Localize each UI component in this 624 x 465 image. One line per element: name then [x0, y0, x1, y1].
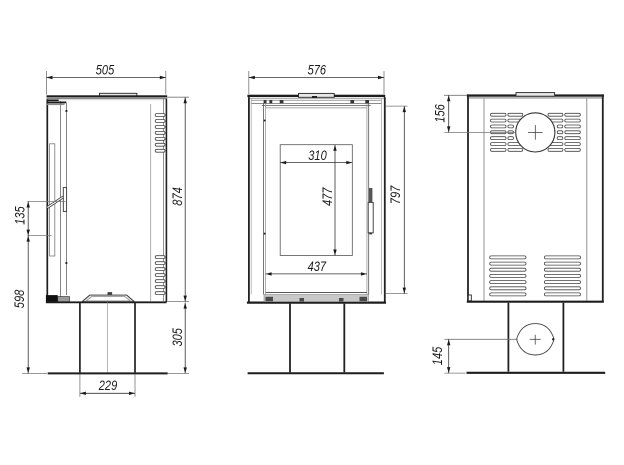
svg-text:598: 598: [11, 290, 27, 309]
svg-text:310: 310: [308, 147, 327, 163]
svg-text:156: 156: [431, 104, 447, 123]
svg-text:576: 576: [308, 62, 327, 78]
svg-text:145: 145: [429, 347, 445, 366]
svg-text:135: 135: [11, 206, 27, 225]
svg-text:505: 505: [96, 62, 115, 78]
svg-text:477: 477: [319, 187, 335, 206]
svg-text:305: 305: [169, 328, 185, 347]
svg-text:797: 797: [387, 185, 403, 204]
svg-text:437: 437: [308, 258, 327, 274]
svg-text:229: 229: [98, 377, 117, 393]
svg-text:874: 874: [169, 187, 185, 206]
